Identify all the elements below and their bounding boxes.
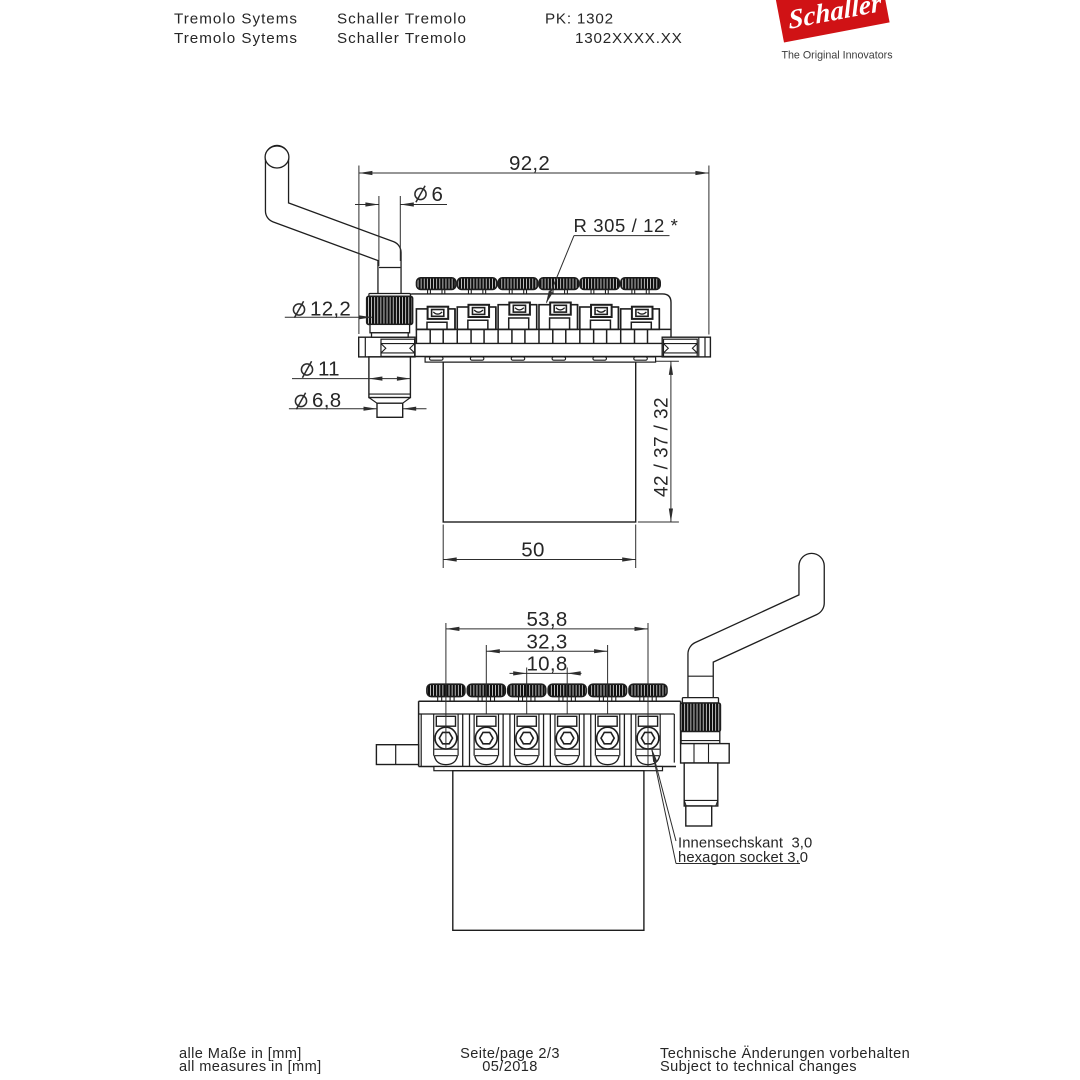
svg-text:6: 6 (432, 183, 444, 206)
svg-text:42 / 37 / 32: 42 / 37 / 32 (652, 397, 673, 497)
svg-text:The Original Innovators: The Original Innovators (781, 50, 892, 62)
svg-text:11: 11 (318, 358, 340, 381)
svg-text:R 305 / 12 *: R 305 / 12 * (574, 215, 679, 236)
svg-text:Schaller Tremolo: Schaller Tremolo (337, 11, 467, 28)
svg-text:PK: 1302: PK: 1302 (545, 11, 614, 28)
svg-text:32,3: 32,3 (526, 630, 567, 653)
svg-text:Subject to technical changes: Subject to technical changes (660, 1059, 857, 1075)
svg-text:53,8: 53,8 (526, 608, 567, 631)
svg-text:hexagon socket 3,0: hexagon socket 3,0 (678, 850, 808, 866)
svg-text:Tremolo Sytems: Tremolo Sytems (174, 11, 298, 28)
svg-text:Tremolo Sytems: Tremolo Sytems (174, 30, 298, 47)
svg-text:50: 50 (521, 539, 544, 562)
svg-text:all measures in [mm]: all measures in [mm] (179, 1059, 322, 1075)
svg-text:05/2018: 05/2018 (482, 1059, 538, 1075)
svg-text:Schaller Tremolo: Schaller Tremolo (337, 30, 467, 47)
svg-text:10,8: 10,8 (526, 653, 567, 676)
svg-text:92,2: 92,2 (509, 152, 550, 175)
svg-text:1302XXXX.XX: 1302XXXX.XX (575, 30, 683, 47)
